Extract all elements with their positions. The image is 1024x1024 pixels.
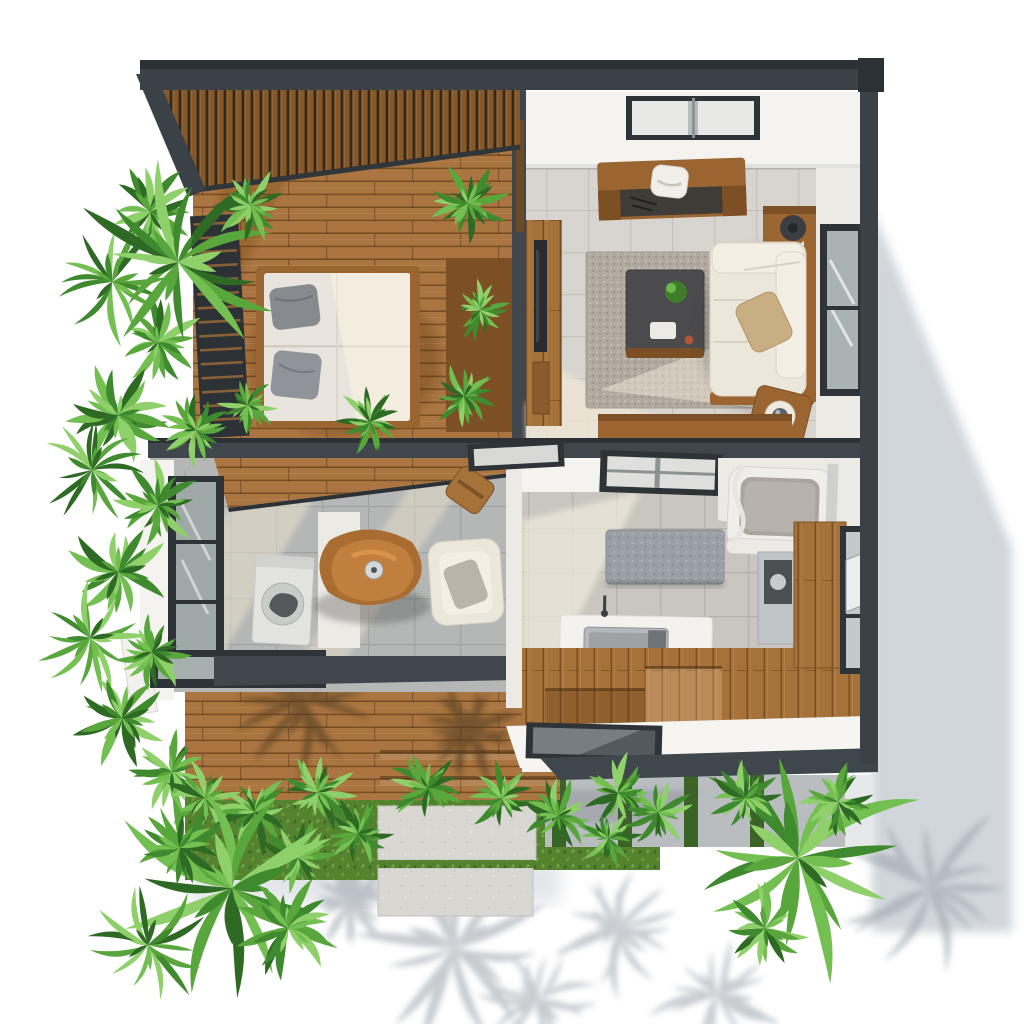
floor-plan-render [0,0,1024,1024]
grass-joint [378,860,534,868]
coffee-table [626,270,704,358]
interior-wall-lower [506,458,524,708]
roof-top-beam [140,58,884,92]
deck-step-edge-2 [380,776,560,780]
desk-chair [650,164,690,199]
washing-machine [252,555,315,646]
skylight [626,96,760,140]
scene-canvas [0,0,1024,1024]
tv [534,240,547,352]
skylight-small [467,439,564,471]
paver-2 [378,868,533,916]
studio-room [121,458,518,715]
bed [250,266,440,435]
living-window [820,224,864,396]
desk [597,157,747,220]
dining-table [314,529,430,624]
wood-cabinet [794,522,846,668]
fridge-appliance [758,552,798,644]
living-room [526,92,864,448]
tv-console [526,220,562,426]
kitchen-island [606,530,724,584]
right-wall-beam [860,74,878,764]
armchair [427,538,505,627]
paver-1 [378,806,536,860]
tray [650,322,676,339]
kitchen-skylight [599,450,722,496]
kitchen-bathroom [467,439,878,780]
